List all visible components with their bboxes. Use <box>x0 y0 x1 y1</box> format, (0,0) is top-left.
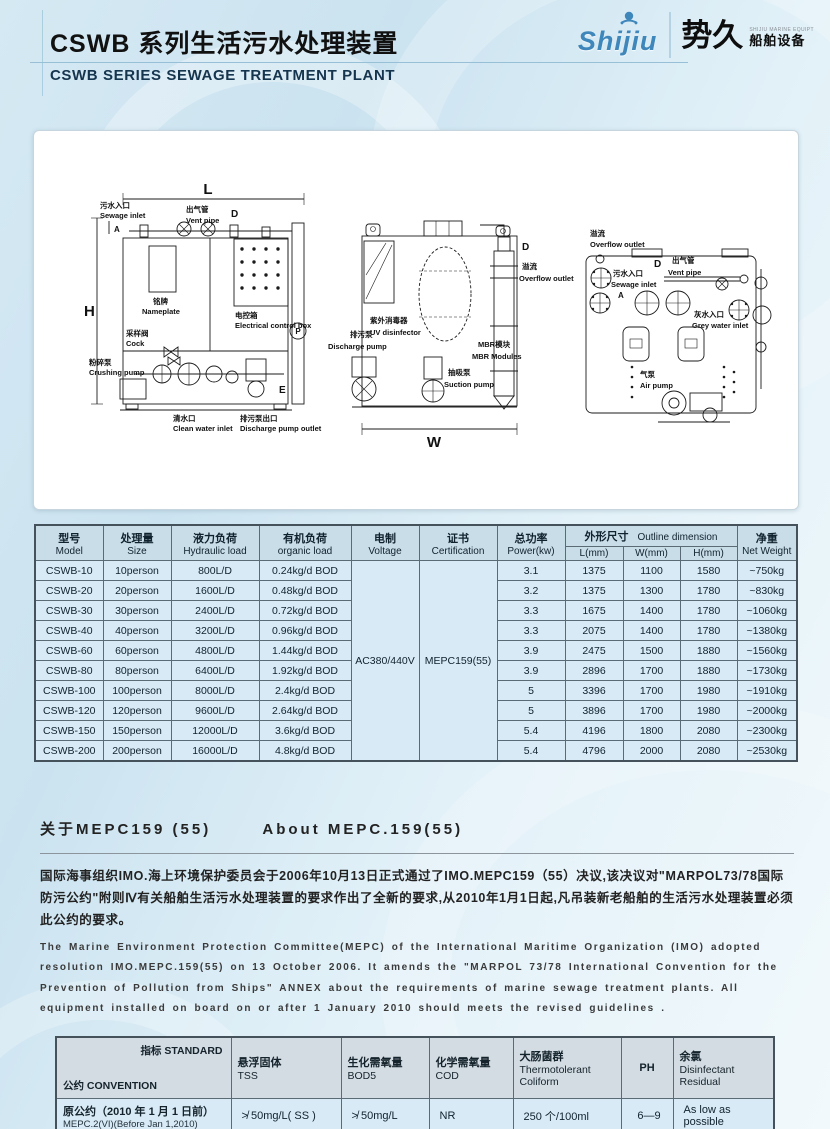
nameplate-label-cn: 铭牌 <box>153 296 168 306</box>
discharge-outlet-label-en: Discharge pump outlet <box>240 424 322 433</box>
mbr-label-cn: MBR模块 <box>478 339 511 349</box>
cell: 1800 <box>623 721 680 741</box>
cell: 6—9 <box>621 1098 673 1129</box>
cell: 0.96kg/d BOD <box>259 621 351 641</box>
cell: ~750kg <box>737 561 797 581</box>
brand-cn-block: 势久 SHIJIU MARINE EQUIPT 船舶设备 <box>681 20 814 51</box>
dim-H: H <box>84 303 95 320</box>
vent-pipe-label-en: Vent pipe <box>186 216 219 225</box>
cell: 1980 <box>680 681 737 701</box>
cell: CSWB-60 <box>35 641 103 661</box>
overflow-label-top-cn: 溢流 <box>590 228 605 238</box>
col-header-model: 型号Model <box>35 525 103 561</box>
cell: 4196 <box>565 721 623 741</box>
front-view-drawing: L H 污水入口 Sewage inlet A 出气管 D Vent pipe <box>84 181 322 433</box>
dim-D-top: D <box>654 259 661 270</box>
cell: 5 <box>497 681 565 701</box>
control-box-buttons <box>240 247 279 289</box>
col-header-bod: 生化需氧量BOD5 <box>341 1037 429 1099</box>
cell: 3.6kg/d BOD <box>259 721 351 741</box>
uv-label-cn: 紫外消毒器 <box>370 315 408 325</box>
cell: 1400 <box>623 621 680 641</box>
cell: 120person <box>103 701 171 721</box>
cell: 3396 <box>565 681 623 701</box>
about-section: 关于MEPC159 (55) About MEPC.159(55) 国际海事组织… <box>40 818 794 1020</box>
cell: 30person <box>103 601 171 621</box>
cell: ≯ 50mg/L( SS ) <box>231 1098 341 1129</box>
cell: 150person <box>103 721 171 741</box>
accent-line <box>42 10 43 96</box>
cell: 200person <box>103 741 171 762</box>
cell: 10person <box>103 561 171 581</box>
cell: 2080 <box>680 721 737 741</box>
vent-pipe-label-cn: 出气管 <box>186 204 209 214</box>
sewage-inlet-label-top-cn: 污水入口 <box>613 268 643 278</box>
corner-header-cell: 指标 STANDARD 公约 CONVENTION <box>56 1037 231 1099</box>
cell: CSWB-40 <box>35 621 103 641</box>
cell: ≯ 50mg/L <box>341 1098 429 1129</box>
cell: 2080 <box>680 741 737 762</box>
title-rule <box>30 62 688 63</box>
section-title-en: About MEPC.159(55) <box>262 821 463 838</box>
cell: ~1560kg <box>737 641 797 661</box>
table-row: 原公约（2010 年 1 月 1 日前）MEPC.2(VI)(Before Ja… <box>56 1098 774 1129</box>
air-pump-label-cn: 气泵 <box>639 369 655 379</box>
cell: 3.1 <box>497 561 565 581</box>
cell: 8000L/D <box>171 681 259 701</box>
brand-sub-block: SHIJIU MARINE EQUIPT 船舶设备 <box>749 28 814 51</box>
cell: 12000L/D <box>171 721 259 741</box>
cell: 5.4 <box>497 721 565 741</box>
cell: 1880 <box>680 641 737 661</box>
dim-D-front: D <box>231 209 238 220</box>
col-header-coliform: 大肠菌群Thermotolerant Coliform <box>513 1037 621 1099</box>
col-header-h: H(mm) <box>680 547 737 561</box>
brand-sub-cn: 船舶设备 <box>749 34 814 49</box>
col-header-cod: 化学需氧量COD <box>429 1037 513 1099</box>
cell: CSWB-100 <box>35 681 103 701</box>
table-row: CSWB-1010person800L/D0.24kg/d BOD AC380/… <box>35 561 797 581</box>
cell: 100person <box>103 681 171 701</box>
brand-name: Shijiu <box>578 26 658 56</box>
cell: 60person <box>103 641 171 661</box>
col-header-ph: PH <box>621 1037 673 1099</box>
cell: ~1910kg <box>737 681 797 701</box>
brand-logo: Shijiu 势久 SHIJIU MARINE EQUIPT 船舶设备 <box>578 12 814 58</box>
cell: 1700 <box>623 681 680 701</box>
cell: 3.3 <box>497 621 565 641</box>
col-header-weight: 净重Net Weight <box>737 525 797 561</box>
cell: 6400L/D <box>171 661 259 681</box>
col-header-power: 总功率Power(kw) <box>497 525 565 561</box>
cock-label-cn: 采样阀 <box>125 328 149 338</box>
cell: CSWB-80 <box>35 661 103 681</box>
dim-L: L <box>203 181 212 198</box>
page: CSWB 系列生活污水处理装置 CSWB SERIES SEWAGE TREAT… <box>0 0 830 1129</box>
certification-cell: MEPC159(55) <box>419 561 497 762</box>
cell: 4.8kg/d BOD <box>259 741 351 762</box>
cell: 1.44kg/d BOD <box>259 641 351 661</box>
cell: 9600L/D <box>171 701 259 721</box>
cell: ~1380kg <box>737 621 797 641</box>
cell: 1880 <box>680 661 737 681</box>
section-marker-a-top: A <box>618 291 624 300</box>
control-box-label-cn: 电控箱 <box>235 310 258 320</box>
cell: 1675 <box>565 601 623 621</box>
cell: 2.4kg/d BOD <box>259 681 351 701</box>
cell: 40person <box>103 621 171 641</box>
brand-mascot-icon <box>618 10 640 26</box>
cell: CSWB-20 <box>35 581 103 601</box>
corner-convention-label: 公约 CONVENTION <box>63 1078 157 1093</box>
cell: 2896 <box>565 661 623 681</box>
cell: CSWB-10 <box>35 561 103 581</box>
page-title: CSWB 系列生活污水处理装置 <box>50 24 398 60</box>
side-view-drawing: D 溢流 Overflow outlet 排污泵 Discharge pump … <box>328 221 574 451</box>
cell: CSWB-120 <box>35 701 103 721</box>
cell: 1300 <box>623 581 680 601</box>
cell: ~1060kg <box>737 601 797 621</box>
cell: 1600L/D <box>171 581 259 601</box>
cell: 1780 <box>680 601 737 621</box>
cell: ~2530kg <box>737 741 797 762</box>
dim-W: W <box>427 434 442 451</box>
col-header-voltage: 电制Voltage <box>351 525 419 561</box>
col-header-organic: 有机负荷organic load <box>259 525 351 561</box>
cell: 0.24kg/d BOD <box>259 561 351 581</box>
top-view-drawing: 溢流 Overflow outlet D 出气管 Vent pipe 污水入口 … <box>586 228 771 422</box>
spec-table: 型号Model 处理量Size 液力负荷Hydraulic load 有机负荷o… <box>34 524 798 762</box>
cell: 2475 <box>565 641 623 661</box>
cell: CSWB-150 <box>35 721 103 741</box>
cell: 3200L/D <box>171 621 259 641</box>
page-subtitle: CSWB SERIES SEWAGE TREATMENT PLANT <box>50 67 395 84</box>
technical-drawing: L H 污水入口 Sewage inlet A 出气管 D Vent pipe <box>34 131 798 509</box>
dim-D-side: D <box>522 242 529 253</box>
standards-table: 指标 STANDARD 公约 CONVENTION 悬浮固体TSS 生化需氧量B… <box>55 1036 775 1129</box>
cell: 80person <box>103 661 171 681</box>
standards-header-row: 指标 STANDARD 公约 CONVENTION 悬浮固体TSS 生化需氧量B… <box>56 1037 774 1099</box>
mbr-label-en: MBR Modules <box>472 352 522 361</box>
cell: 1.92kg/d BOD <box>259 661 351 681</box>
col-header-hydraulic: 液力负荷Hydraulic load <box>171 525 259 561</box>
cell: 16000L/D <box>171 741 259 762</box>
cell: 2400L/D <box>171 601 259 621</box>
cock-label-en: Cock <box>126 339 145 348</box>
cell: 250 个/100ml <box>513 1098 621 1129</box>
cell: 1780 <box>680 621 737 641</box>
brand-name-cn: 势久 <box>681 20 743 51</box>
clean-water-label-en: Clean water inlet <box>173 424 233 433</box>
discharge-outlet-label-cn: 排污泵出口 <box>240 413 278 423</box>
cell: 3.9 <box>497 661 565 681</box>
cell: 1400 <box>623 601 680 621</box>
brand-shijiu-wrap: Shijiu <box>578 14 658 57</box>
cell: 0.48kg/d BOD <box>259 581 351 601</box>
col-header-outline: 外形尺寸 Outline dimension <box>565 525 737 547</box>
cell: 5.4 <box>497 741 565 762</box>
cell: 2.64kg/d BOD <box>259 701 351 721</box>
cell: 4796 <box>565 741 623 762</box>
cell: 20person <box>103 581 171 601</box>
air-pump-label-en: Air pump <box>640 381 673 390</box>
sewage-inlet-label-top-en: Sewage inlet <box>611 280 657 289</box>
cell: 1700 <box>623 661 680 681</box>
vent-pipe-label-top-cn: 出气管 <box>672 255 695 265</box>
cell: 1580 <box>680 561 737 581</box>
cell: 1375 <box>565 581 623 601</box>
grey-water-label-en: Grey water inlet <box>692 321 749 330</box>
cell: ~2000kg <box>737 701 797 721</box>
vent-pipe-label-top-en: Vent pipe <box>668 268 701 277</box>
drawings-panel: L H 污水入口 Sewage inlet A 出气管 D Vent pipe <box>33 130 799 510</box>
cell: 1375 <box>565 561 623 581</box>
cell: ~1730kg <box>737 661 797 681</box>
crushing-pump-label-cn: 粉碎泵 <box>89 357 112 367</box>
section-marker-a: A <box>114 225 120 234</box>
overflow-label-side-en: Overflow outlet <box>519 274 574 283</box>
crushing-pump-label-en: Crushing pump <box>89 368 145 377</box>
row-label-old-convention: 原公约（2010 年 1 月 1 日前）MEPC.2(VI)(Before Ja… <box>56 1098 231 1129</box>
grey-water-label-cn: 灰水入口 <box>694 309 724 319</box>
col-header-tss: 悬浮固体TSS <box>231 1037 341 1099</box>
suction-pump-label-en: Suction pump <box>444 380 494 389</box>
cell: 2075 <box>565 621 623 641</box>
section-marker-e: E <box>279 385 286 396</box>
section-divider <box>40 853 794 854</box>
cell: CSWB-200 <box>35 741 103 762</box>
col-header-certification: 证书Certification <box>419 525 497 561</box>
cell: CSWB-30 <box>35 601 103 621</box>
cell: 1780 <box>680 581 737 601</box>
sewage-inlet-label-cn: 污水入口 <box>100 200 130 210</box>
corner-standard-label: 指标 STANDARD <box>140 1043 222 1058</box>
suction-pump-label-cn: 抽吸泵 <box>448 367 471 377</box>
cell: 3.3 <box>497 601 565 621</box>
cell: 0.72kg/d BOD <box>259 601 351 621</box>
cell: 1500 <box>623 641 680 661</box>
section-title-cn: 关于MEPC159 (55) <box>40 821 211 838</box>
spec-header-row: 型号Model 处理量Size 液力负荷Hydraulic load 有机负荷o… <box>35 525 797 547</box>
cell: As low as possible <box>673 1098 774 1129</box>
cell: 800L/D <box>171 561 259 581</box>
cell: 3.2 <box>497 581 565 601</box>
cell: ~2300kg <box>737 721 797 741</box>
col-header-size: 处理量Size <box>103 525 171 561</box>
col-header-l: L(mm) <box>565 547 623 561</box>
section-title: 关于MEPC159 (55) About MEPC.159(55) <box>40 818 794 839</box>
about-paragraph-en: The Marine Environment Protection Commit… <box>40 938 794 1020</box>
header: CSWB 系列生活污水处理装置 CSWB SERIES SEWAGE TREAT… <box>0 0 830 102</box>
uv-label-en: UV disinfector <box>370 328 421 337</box>
control-box-label-en: Electrical control box <box>235 321 312 330</box>
sewage-inlet-label-en: Sewage inlet <box>100 211 146 220</box>
nameplate-label-en: Nameplate <box>142 307 180 316</box>
logo-divider <box>669 12 671 58</box>
cell: 4800L/D <box>171 641 259 661</box>
cell: ~830kg <box>737 581 797 601</box>
clean-water-label-cn: 清水口 <box>173 413 196 423</box>
cell: 1700 <box>623 701 680 721</box>
cell: 1980 <box>680 701 737 721</box>
cell: 5 <box>497 701 565 721</box>
cell: 2000 <box>623 741 680 762</box>
cell: NR <box>429 1098 513 1129</box>
cell: 3896 <box>565 701 623 721</box>
voltage-cell: AC380/440V <box>351 561 419 762</box>
overflow-label-side-cn: 溢流 <box>522 261 537 271</box>
discharge-pump-label-en: Discharge pump <box>328 342 387 351</box>
overflow-label-top-en: Overflow outlet <box>590 240 645 249</box>
cell: 3.9 <box>497 641 565 661</box>
cell: 1100 <box>623 561 680 581</box>
col-header-residual: 余氯Disinfectant Residual <box>673 1037 774 1099</box>
col-header-w: W(mm) <box>623 547 680 561</box>
about-paragraph-cn: 国际海事组织IMO.海上环境保护委员会于2006年10月13日正式通过了IMO.… <box>40 866 794 932</box>
